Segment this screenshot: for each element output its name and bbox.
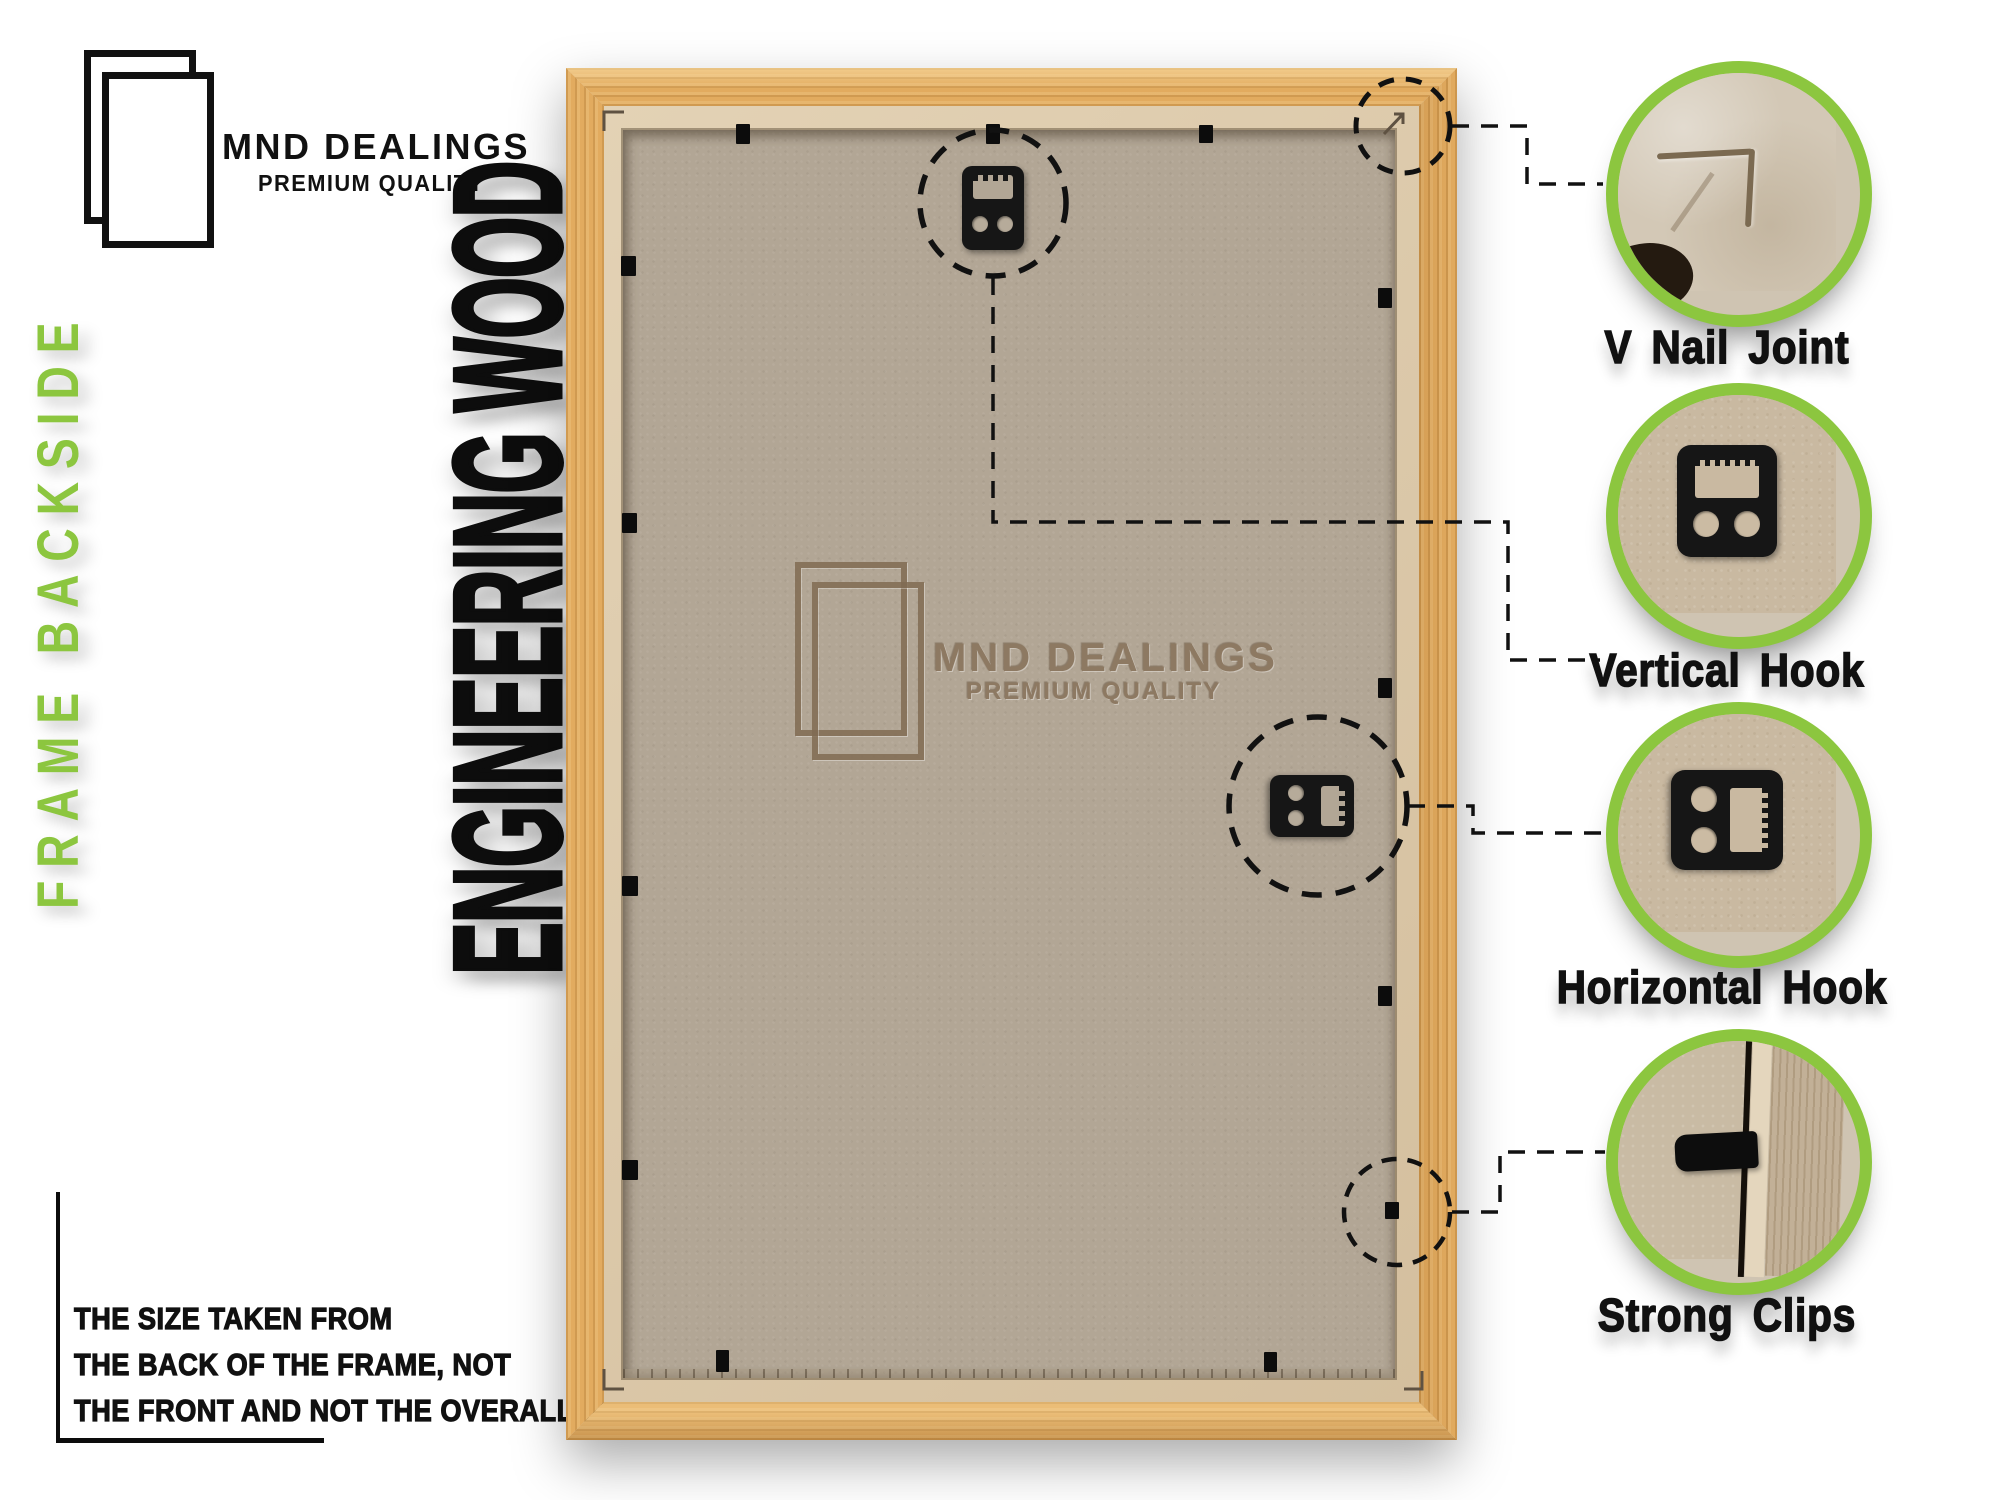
frame-rail-bottom [566, 1402, 1457, 1440]
horizontal-hook-photo [1618, 714, 1836, 932]
engineering-wood-banner: ENGINEERING WOOD [421, 195, 581, 975]
clip-icon [1264, 1352, 1277, 1372]
sawtooth-edge [1339, 786, 1345, 826]
size-note-line-3: THE FRONT AND NOT THE OVERALL SIZE. [74, 1388, 488, 1434]
product-infographic: MND DEALINGS PREMIUM QUALITY FRAME BACKS… [0, 0, 2000, 1500]
callout-label-strong-clips: Strong Clips [1498, 1288, 1956, 1342]
frame-rail-right [1419, 68, 1457, 1440]
watermark-brand-tagline: PREMIUM QUALITY [966, 678, 1221, 706]
horizontal-hook-icon [1270, 775, 1354, 837]
callout-circle-v-nail-joint [1606, 61, 1872, 327]
callout-connector-v-nail [1452, 126, 1603, 184]
callout-label-v-nail-joint: V Nail Joint [1498, 320, 1956, 374]
callout-label-vertical-hook: Vertical Hook [1498, 643, 1956, 697]
callout-label-horizontal-hook: Horizontal Hook [1493, 960, 1951, 1014]
sawtooth-edge [973, 175, 1013, 181]
brand-logo-double-frame-icon [84, 50, 214, 238]
callout-circle-strong-clips [1606, 1029, 1872, 1295]
clip-icon [1199, 125, 1213, 143]
note-vertical-rule [56, 1192, 60, 1440]
callout-circle-horizontal-hook [1606, 702, 1872, 968]
clip-icon [1378, 288, 1392, 308]
clip-icon [622, 876, 638, 896]
frame-rail-left [566, 68, 604, 1440]
clip-icon [622, 513, 637, 533]
strong-clip-photo [1618, 1041, 1836, 1259]
picture-frame-backside [566, 68, 1457, 1440]
clip-icon [716, 1350, 729, 1372]
watermark-logo-double-frame-icon [795, 562, 925, 754]
callout-circle-vertical-hook [1606, 383, 1872, 649]
clip-icon [621, 256, 636, 276]
clip-icon [1378, 678, 1392, 698]
frame-rail-top [566, 68, 1457, 106]
note-horizontal-rule [56, 1438, 324, 1443]
clip-icon [736, 124, 750, 144]
watermark-brand-name: MND DEALINGS [933, 636, 1278, 681]
clip-icon [986, 124, 1000, 144]
mdf-backboard [623, 130, 1395, 1378]
backboard-bottom-seam [623, 1369, 1395, 1378]
clip-icon [1378, 986, 1392, 1006]
logo-front-frame-outline [102, 72, 214, 248]
vertical-hook-photo [1618, 395, 1836, 613]
size-note: THE SIZE TAKEN FROM THE BACK OF THE FRAM… [74, 1296, 488, 1434]
frame-backside-vertical-label: FRAME BACKSIDE [25, 317, 87, 909]
clip-icon [1385, 1202, 1399, 1219]
size-note-line-2: THE BACK OF THE FRAME, NOT [74, 1342, 488, 1388]
v-nail-joint-photo [1618, 73, 1836, 291]
clip-icon [622, 1160, 638, 1180]
vertical-hook-icon [962, 166, 1024, 250]
watermark-front-frame-outline [812, 582, 924, 760]
callout-connector-strong-clips [1452, 1152, 1605, 1212]
size-note-line-1: THE SIZE TAKEN FROM [74, 1296, 488, 1342]
